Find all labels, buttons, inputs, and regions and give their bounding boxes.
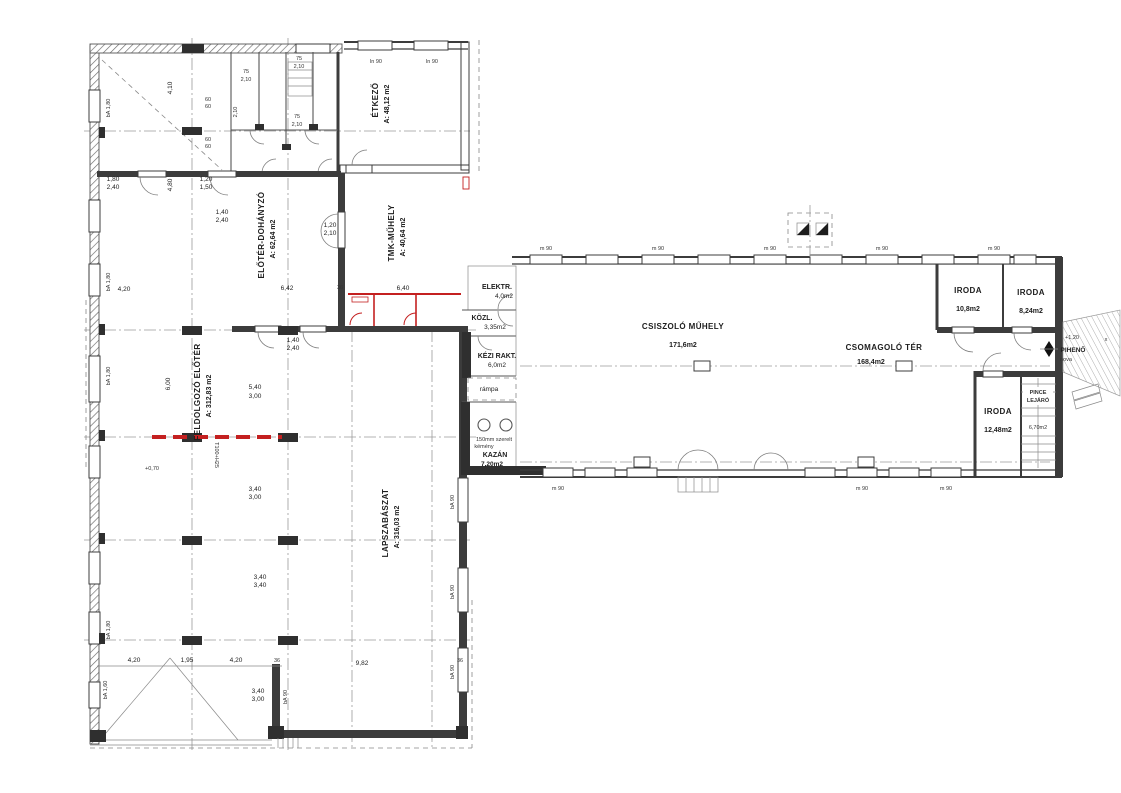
room-label-iroda-a: IRODA	[954, 286, 982, 295]
wing-columns	[634, 361, 912, 467]
dim: 1,40	[216, 209, 229, 216]
dim: 6,00	[165, 377, 172, 390]
dim: 75	[296, 56, 302, 62]
window-tag: bA 1,60	[103, 681, 109, 700]
room-label-kazan: KAZÁN	[483, 450, 508, 459]
boiler-note-2: kémény	[474, 444, 494, 450]
dim: 3,40	[254, 574, 267, 581]
room-area-etkezo: A: 48,12 m2	[384, 84, 391, 123]
room-area-iroda-a: 10,8m2	[956, 306, 980, 313]
dim: 60	[205, 137, 211, 143]
x-mark: x	[1105, 337, 1108, 343]
room-area-tmk: A: 40,64 m2	[400, 217, 407, 256]
room-area-kazan: 7,20m2	[481, 461, 503, 468]
dim: 2,10	[292, 122, 303, 128]
room-area-eloter: A: 62,64 m2	[270, 219, 277, 258]
dim: 5,40	[249, 384, 262, 391]
dim: 6,42	[281, 285, 294, 292]
room-label-kezi: KÉZI RAKT.	[478, 351, 517, 360]
dim: 1,40	[287, 337, 300, 344]
interior-wall-north	[97, 171, 341, 195]
room-label-iroda-c: IRODA	[984, 407, 1012, 416]
right-wing	[512, 205, 1120, 492]
room-area-lapszabaszat: A: 316,03 m2	[394, 505, 401, 548]
window-tag: bA 1,80	[106, 273, 112, 292]
room-area-csomagolo: 168,4m2	[857, 359, 885, 366]
dim: 4,20	[128, 657, 141, 664]
room-area-iroda-b: 8,24m2	[1019, 308, 1043, 315]
room-area-iroda-c: 12,48m2	[984, 427, 1012, 434]
dim: 1,95	[181, 657, 194, 664]
dim: 2,40	[287, 345, 300, 352]
dimension-labels: ln 90 ln 90 75 2,10 75 2,10 75 2,10 2,10…	[103, 56, 1108, 704]
room-label-eloter: ELŐTÉR-DOHÁNYZÓ	[257, 192, 266, 279]
exterior-stair	[678, 477, 718, 492]
room-area-kozl: 3,35m2	[484, 324, 506, 331]
chimney-flue-1	[478, 419, 490, 431]
room-label-pince-2: LEJÁRÓ	[1027, 396, 1050, 404]
window-tag: bA 1,80	[106, 621, 112, 640]
chimney-flue-2	[500, 419, 512, 431]
new-partition-walls-red	[348, 177, 469, 327]
dim: 4,10	[167, 81, 174, 94]
red-label	[352, 297, 368, 302]
floor-plan-drawing: ÉTKEZŐ A: 48,12 m2 ELŐTÉR-DOHÁNYZÓ A: 62…	[0, 0, 1121, 793]
dim: 3,00	[252, 696, 265, 703]
chimney-symbol	[788, 205, 832, 258]
room-label-pince-1: PINCE	[1030, 390, 1047, 396]
dim: T100+H25	[213, 442, 219, 468]
room-label-tmk: TMK-MŰHELY	[387, 204, 396, 261]
boiler-note-1: 150mm szerelt	[476, 437, 513, 443]
dim: 3,00	[249, 494, 262, 501]
dim: 2,10	[241, 77, 252, 83]
window-tag: bA 1,80	[106, 99, 112, 118]
dim: 36	[337, 285, 343, 291]
level-mark: +0,70	[145, 466, 159, 472]
tmk-partition	[321, 173, 345, 332]
room-label-piheno: PIHENŐ	[1061, 345, 1086, 354]
dim: ln 90	[370, 59, 382, 65]
dim: 60	[205, 144, 211, 150]
dim: 1,20	[200, 176, 213, 183]
dim: 4,80	[167, 178, 174, 191]
window-tag: m 90	[940, 486, 952, 492]
window	[296, 44, 330, 53]
window-tag: bA 1,80	[106, 367, 112, 386]
window-tag: m 90	[856, 486, 868, 492]
dim: 2,40	[107, 184, 120, 191]
hall-south-wall	[90, 600, 472, 748]
window-tag: m 90	[540, 246, 552, 252]
dim: 3,40	[249, 486, 262, 493]
room-etkezo	[340, 40, 479, 173]
room-sub-piheno: nova	[1060, 357, 1073, 363]
dim: 2,10	[324, 230, 337, 237]
dim: 2,10	[294, 64, 305, 70]
dim: 1,20	[324, 222, 337, 229]
room-area-elektr: 4,0m2	[495, 293, 513, 300]
room-label-etkezo: ÉTKEZŐ	[371, 83, 380, 118]
room-label-csomagolo: CSOMAGOLÓ TÉR	[846, 343, 923, 352]
dim: 75	[243, 69, 249, 75]
dim: 3,00	[249, 393, 262, 400]
dim: 2,10	[233, 107, 239, 118]
window-tag: m 90	[876, 246, 888, 252]
room-area-feldolgozo: A: 312,83 m2	[206, 374, 213, 417]
window-tag: bA 90	[450, 665, 456, 679]
room-area-kezi: 6,0m2	[488, 362, 506, 369]
hall-east-wall	[458, 330, 468, 738]
exterior-stair-ticks	[278, 738, 298, 748]
dim: 75	[294, 114, 300, 120]
room-label-feldolgozo: FELDOLGOZÓ ELŐTÉR	[193, 343, 202, 440]
interior-wall-mid	[232, 326, 468, 348]
window-tag: m 90	[652, 246, 664, 252]
room-label-lapszabaszat: LAPSZABÁSZAT	[381, 489, 390, 558]
window-tag: m 90	[764, 246, 776, 252]
window-tag: bA 90	[450, 585, 456, 599]
room-area-pince: 6,70m2	[1029, 425, 1047, 431]
room-label-iroda-b: IRODA	[1017, 288, 1045, 297]
window-tag: m 90	[552, 486, 564, 492]
dim: 1,50	[200, 184, 213, 191]
room-area-csiszolo: 171,6m2	[669, 342, 697, 349]
room-label-elektr: ELEKTR.	[482, 284, 512, 291]
red-mark	[463, 177, 469, 189]
dim: 6,40	[397, 285, 410, 292]
level-mark: +1,20	[1065, 335, 1079, 341]
wall-pilaster	[182, 44, 204, 53]
room-label-csiszolo: CSISZOLÓ MŰHELY	[642, 322, 724, 331]
window-tag: m 90	[988, 246, 1000, 252]
dim: 3,40	[252, 688, 265, 695]
dim: 4,20	[230, 657, 243, 664]
dim: 60	[205, 104, 211, 110]
wing-east-wall	[1055, 257, 1063, 477]
room-label-kozl: KÖZL.	[472, 313, 493, 322]
window-tag: bA 90	[450, 495, 456, 509]
floor-plan-scan: ÉTKEZŐ A: 48,12 m2 ELŐTÉR-DOHÁNYZÓ A: 62…	[0, 0, 1121, 793]
dim: ln 90	[426, 59, 438, 65]
dim: 1,80	[107, 176, 120, 183]
dim: 60	[205, 97, 211, 103]
left-building	[86, 40, 479, 748]
dim: 36	[457, 658, 463, 664]
dim: 3,40	[254, 582, 267, 589]
wing-south-windows	[543, 468, 961, 477]
wing-south-doors	[678, 450, 788, 492]
dim: 36	[274, 658, 280, 664]
dim: 4,20	[118, 286, 131, 293]
dim: 9,82	[356, 660, 369, 667]
grid-axes	[84, 38, 1050, 750]
window-tag: bA 90	[283, 690, 289, 704]
label-rampa: rámpa	[480, 386, 499, 393]
dim: 2,40	[216, 217, 229, 224]
